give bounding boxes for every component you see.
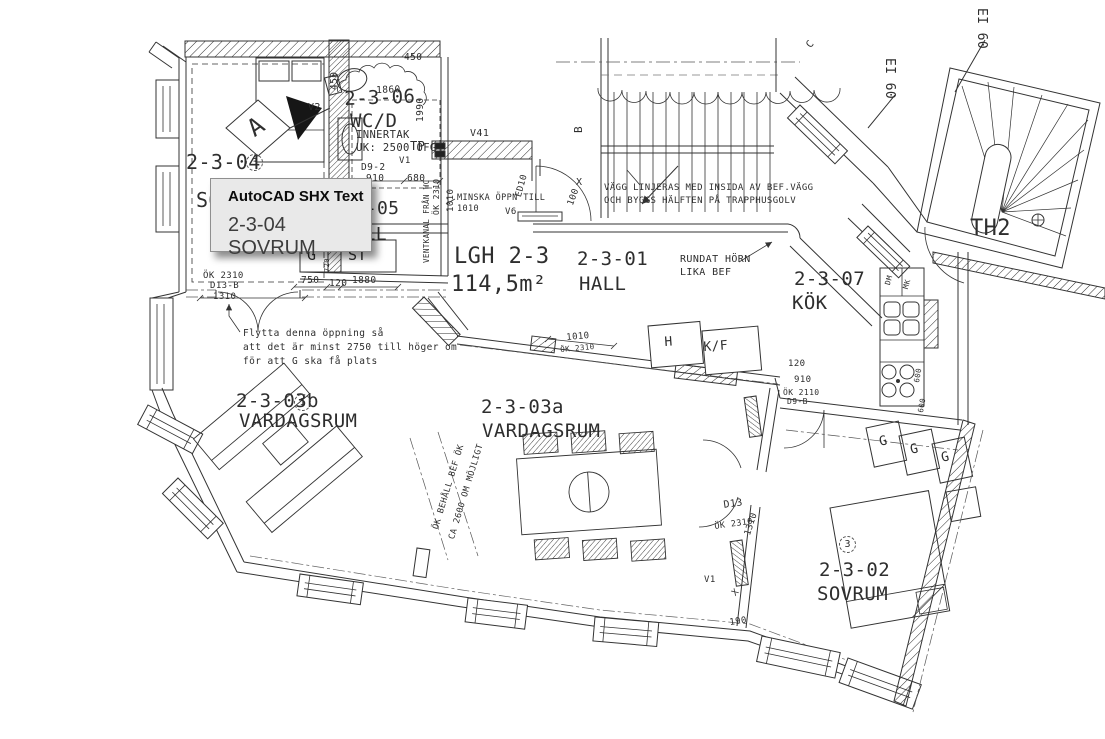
walls-group xyxy=(138,38,1105,712)
floorplan-linework xyxy=(0,0,1105,739)
drawing-canvas: 2-3-04SOVRUM2-3-05HALL2-3-06WC/DINNERTAK… xyxy=(0,0,1105,739)
shx-tooltip-title: AutoCAD SHX Text xyxy=(228,188,371,205)
shx-tooltip: AutoCAD SHX Text 2-3-04 SOVRUM xyxy=(210,178,372,252)
shx-tooltip-value: 2-3-04 SOVRUM xyxy=(228,214,371,260)
